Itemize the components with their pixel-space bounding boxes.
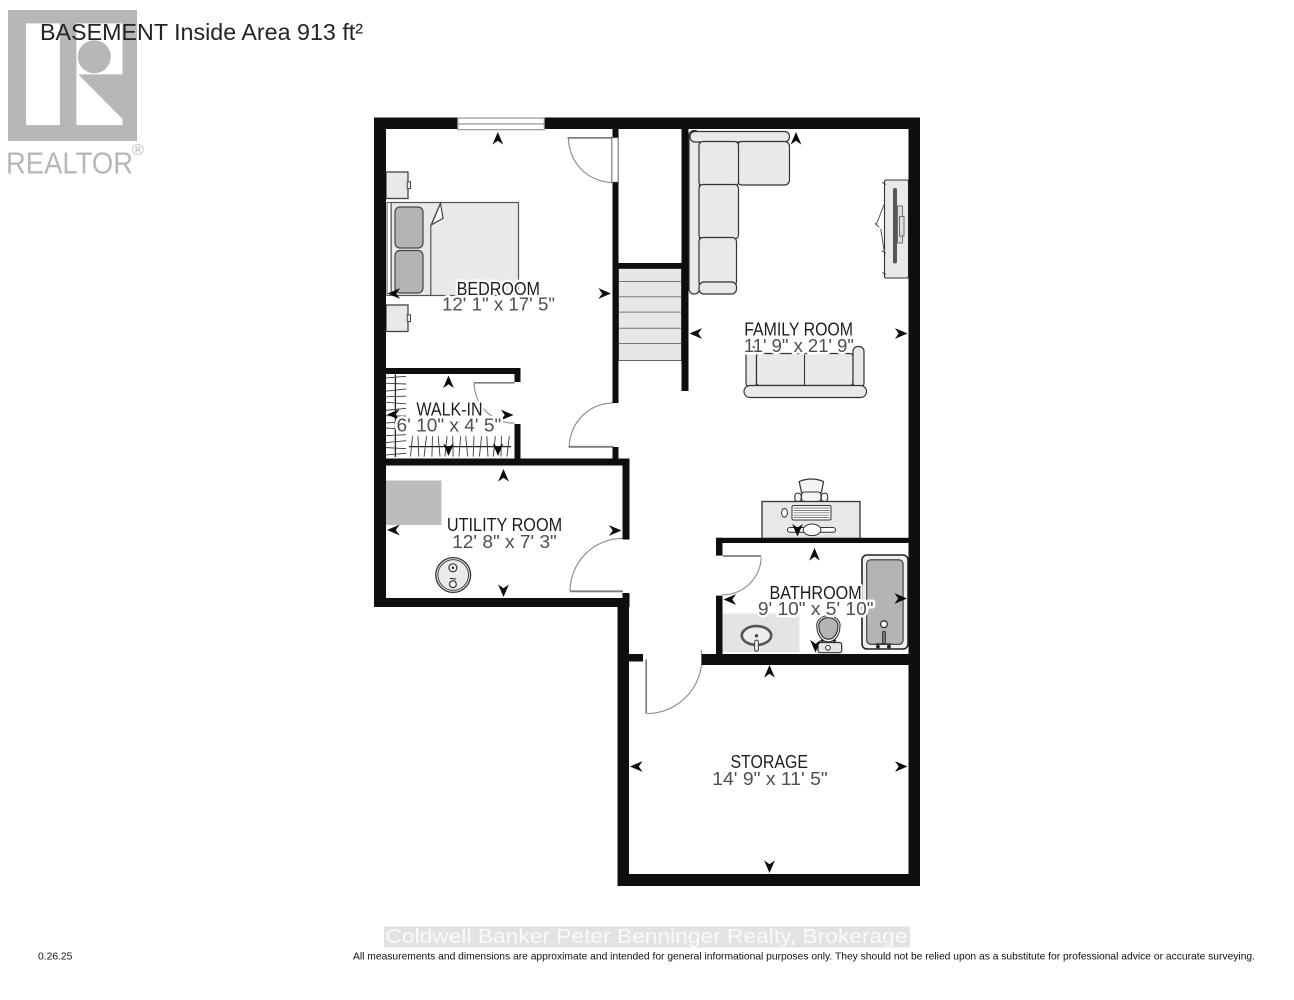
svg-text:6' 10" x 4' 5": 6' 10" x 4' 5" <box>397 415 502 436</box>
svg-text:All measurements and dimension: All measurements and dimensions are appr… <box>353 952 1255 963</box>
svg-text:®: ® <box>132 142 144 159</box>
svg-text:9' 10" x 5' 10": 9' 10" x 5' 10" <box>758 598 874 619</box>
svg-text:Coldwell Banker Peter Benninge: Coldwell Banker Peter Benninger Realty, … <box>386 926 908 948</box>
svg-text:0.26.25: 0.26.25 <box>38 952 73 963</box>
svg-text:14' 9" x 11' 5": 14' 9" x 11' 5" <box>712 768 828 789</box>
svg-text:BASEMENT Inside Area 913 ft²: BASEMENT Inside Area 913 ft² <box>40 19 363 45</box>
svg-text:12' 1" x 17' 5": 12' 1" x 17' 5" <box>442 294 555 315</box>
svg-text:12' 8" x 7' 3": 12' 8" x 7' 3" <box>452 531 557 552</box>
svg-text:11' 9" x 21' 9": 11' 9" x 21' 9" <box>744 335 854 356</box>
svg-text:REALTOR: REALTOR <box>6 146 133 181</box>
